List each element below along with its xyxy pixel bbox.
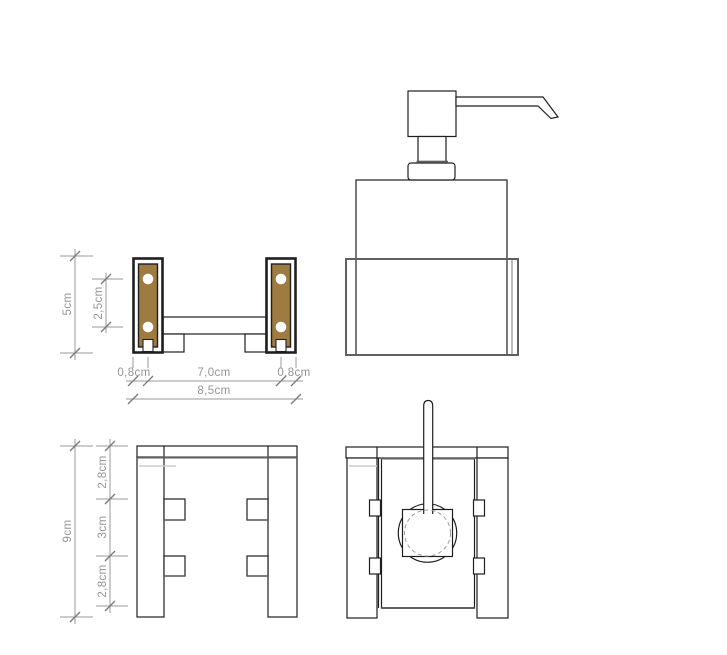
dim-label-right-plate: 0,8cm bbox=[277, 367, 310, 379]
dim-label-span: 7,0cm bbox=[197, 367, 230, 379]
bracket-front-drawing bbox=[134, 259, 296, 353]
dim-label-bracket-height: 5cm bbox=[62, 293, 74, 316]
dim-label-middle: 3cm bbox=[97, 516, 109, 539]
left-plate-screw-hole-bottom bbox=[143, 322, 154, 333]
left-holder-arm bbox=[137, 457, 164, 617]
dim-label-overall-depth: 9cm bbox=[62, 520, 74, 543]
right-holder-arm-top bbox=[477, 458, 508, 618]
assembly-top-view bbox=[346, 401, 508, 619]
pump-collar bbox=[408, 163, 455, 180]
left-arm-lower-tab bbox=[164, 556, 185, 576]
right-lower-tab-top bbox=[474, 558, 485, 574]
dim-label-overall-width: 8,5cm bbox=[197, 385, 230, 397]
bracket-right-block bbox=[245, 334, 266, 352]
right-holder-arm bbox=[268, 457, 297, 617]
pump-head bbox=[408, 91, 456, 137]
right-arm-upper-tab bbox=[247, 499, 268, 520]
bracket-crossbar bbox=[163, 317, 266, 334]
pump-spout bbox=[456, 97, 558, 119]
bracket-front-view: 5cm 2,5cm 0,8cm 7,0cm 0,8cm 8,5cm bbox=[60, 249, 311, 404]
right-plate-screw-hole-top bbox=[276, 274, 287, 285]
pump-neck bbox=[418, 137, 446, 162]
dim-label-upper: 2,8cm bbox=[97, 455, 109, 488]
bracket-left-block bbox=[163, 334, 184, 352]
dispenser-front-view bbox=[346, 91, 558, 355]
pump-spout-top-fill bbox=[424, 401, 433, 515]
dim-label-lower: 2,8cm bbox=[97, 564, 109, 597]
technical-drawing-page: 5cm 2,5cm 0,8cm 7,0cm 0,8cm 8,5cm bbox=[0, 0, 727, 655]
dim-label-left-plate: 0,8cm bbox=[117, 367, 150, 379]
left-arm-upper-tab bbox=[164, 499, 185, 520]
left-holder-arm-top bbox=[347, 458, 377, 618]
holder-side-dimensions: 9cm 2,8cm 3cm 2,8cm bbox=[60, 439, 128, 624]
wall-bar bbox=[137, 446, 297, 457]
left-upper-tab-top bbox=[370, 500, 381, 516]
soap-dispenser-technical-drawing: 5cm 2,5cm 0,8cm 7,0cm 0,8cm 8,5cm bbox=[0, 0, 727, 655]
right-arm-lower-tab bbox=[247, 556, 268, 576]
dispenser-bottle bbox=[356, 180, 507, 355]
right-plate-screw-hole-bottom bbox=[276, 322, 287, 333]
right-upper-tab-top bbox=[474, 500, 485, 516]
pump-head-top bbox=[403, 510, 453, 557]
holder-side-view: 9cm 2,8cm 3cm 2,8cm bbox=[60, 439, 297, 624]
left-plate-notch bbox=[143, 340, 153, 352]
holder-side-drawing bbox=[137, 446, 297, 617]
right-plate-notch bbox=[276, 340, 286, 352]
dim-label-hole-spacing: 2,5cm bbox=[93, 286, 105, 319]
left-lower-tab-top bbox=[370, 558, 381, 574]
left-plate-screw-hole-top bbox=[143, 274, 154, 285]
